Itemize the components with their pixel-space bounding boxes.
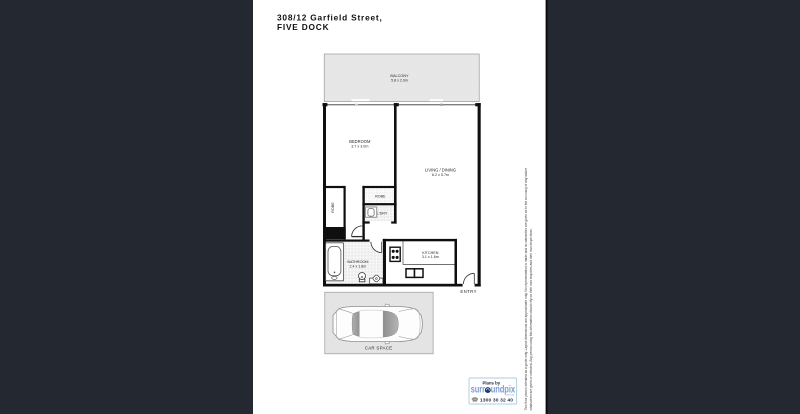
svg-text:5.8 x 2.0m: 5.8 x 2.0m: [391, 78, 408, 82]
svg-text:3.1 x 1.6m: 3.1 x 1.6m: [422, 255, 439, 259]
svg-text:1300 30 32 40: 1300 30 32 40: [480, 398, 513, 404]
svg-text:308/12 Garfield Street,: 308/12 Garfield Street,: [277, 13, 383, 23]
svg-text:3.7 x 3.0m: 3.7 x 3.0m: [351, 145, 368, 149]
svg-text:ROBE: ROBE: [375, 194, 386, 198]
svg-text:FIVE DOCK: FIVE DOCK: [277, 22, 329, 32]
svg-text:LIVING / DINING: LIVING / DINING: [425, 167, 456, 172]
svg-text:This floor plan is intended as: This floor plan is intended as a guide o…: [524, 167, 528, 410]
svg-text:6.2 x 5.7m: 6.2 x 5.7m: [432, 173, 449, 177]
svg-text:CAR SPACE: CAR SPACE: [365, 346, 393, 351]
svg-text:L'DRY: L'DRY: [377, 211, 388, 215]
svg-text:.com.au: .com.au: [505, 394, 515, 397]
svg-text:ROBE: ROBE: [331, 202, 335, 213]
svg-text:ENTRY: ENTRY: [460, 289, 477, 294]
svg-text:whatsoever are given or intend: whatsoever are given or intended. Any pe…: [529, 228, 533, 410]
svg-text:BEDROOM: BEDROOM: [349, 139, 371, 144]
svg-text:2.4 x 1.8m: 2.4 x 1.8m: [350, 264, 367, 268]
svg-text:surr: surr: [471, 383, 486, 394]
